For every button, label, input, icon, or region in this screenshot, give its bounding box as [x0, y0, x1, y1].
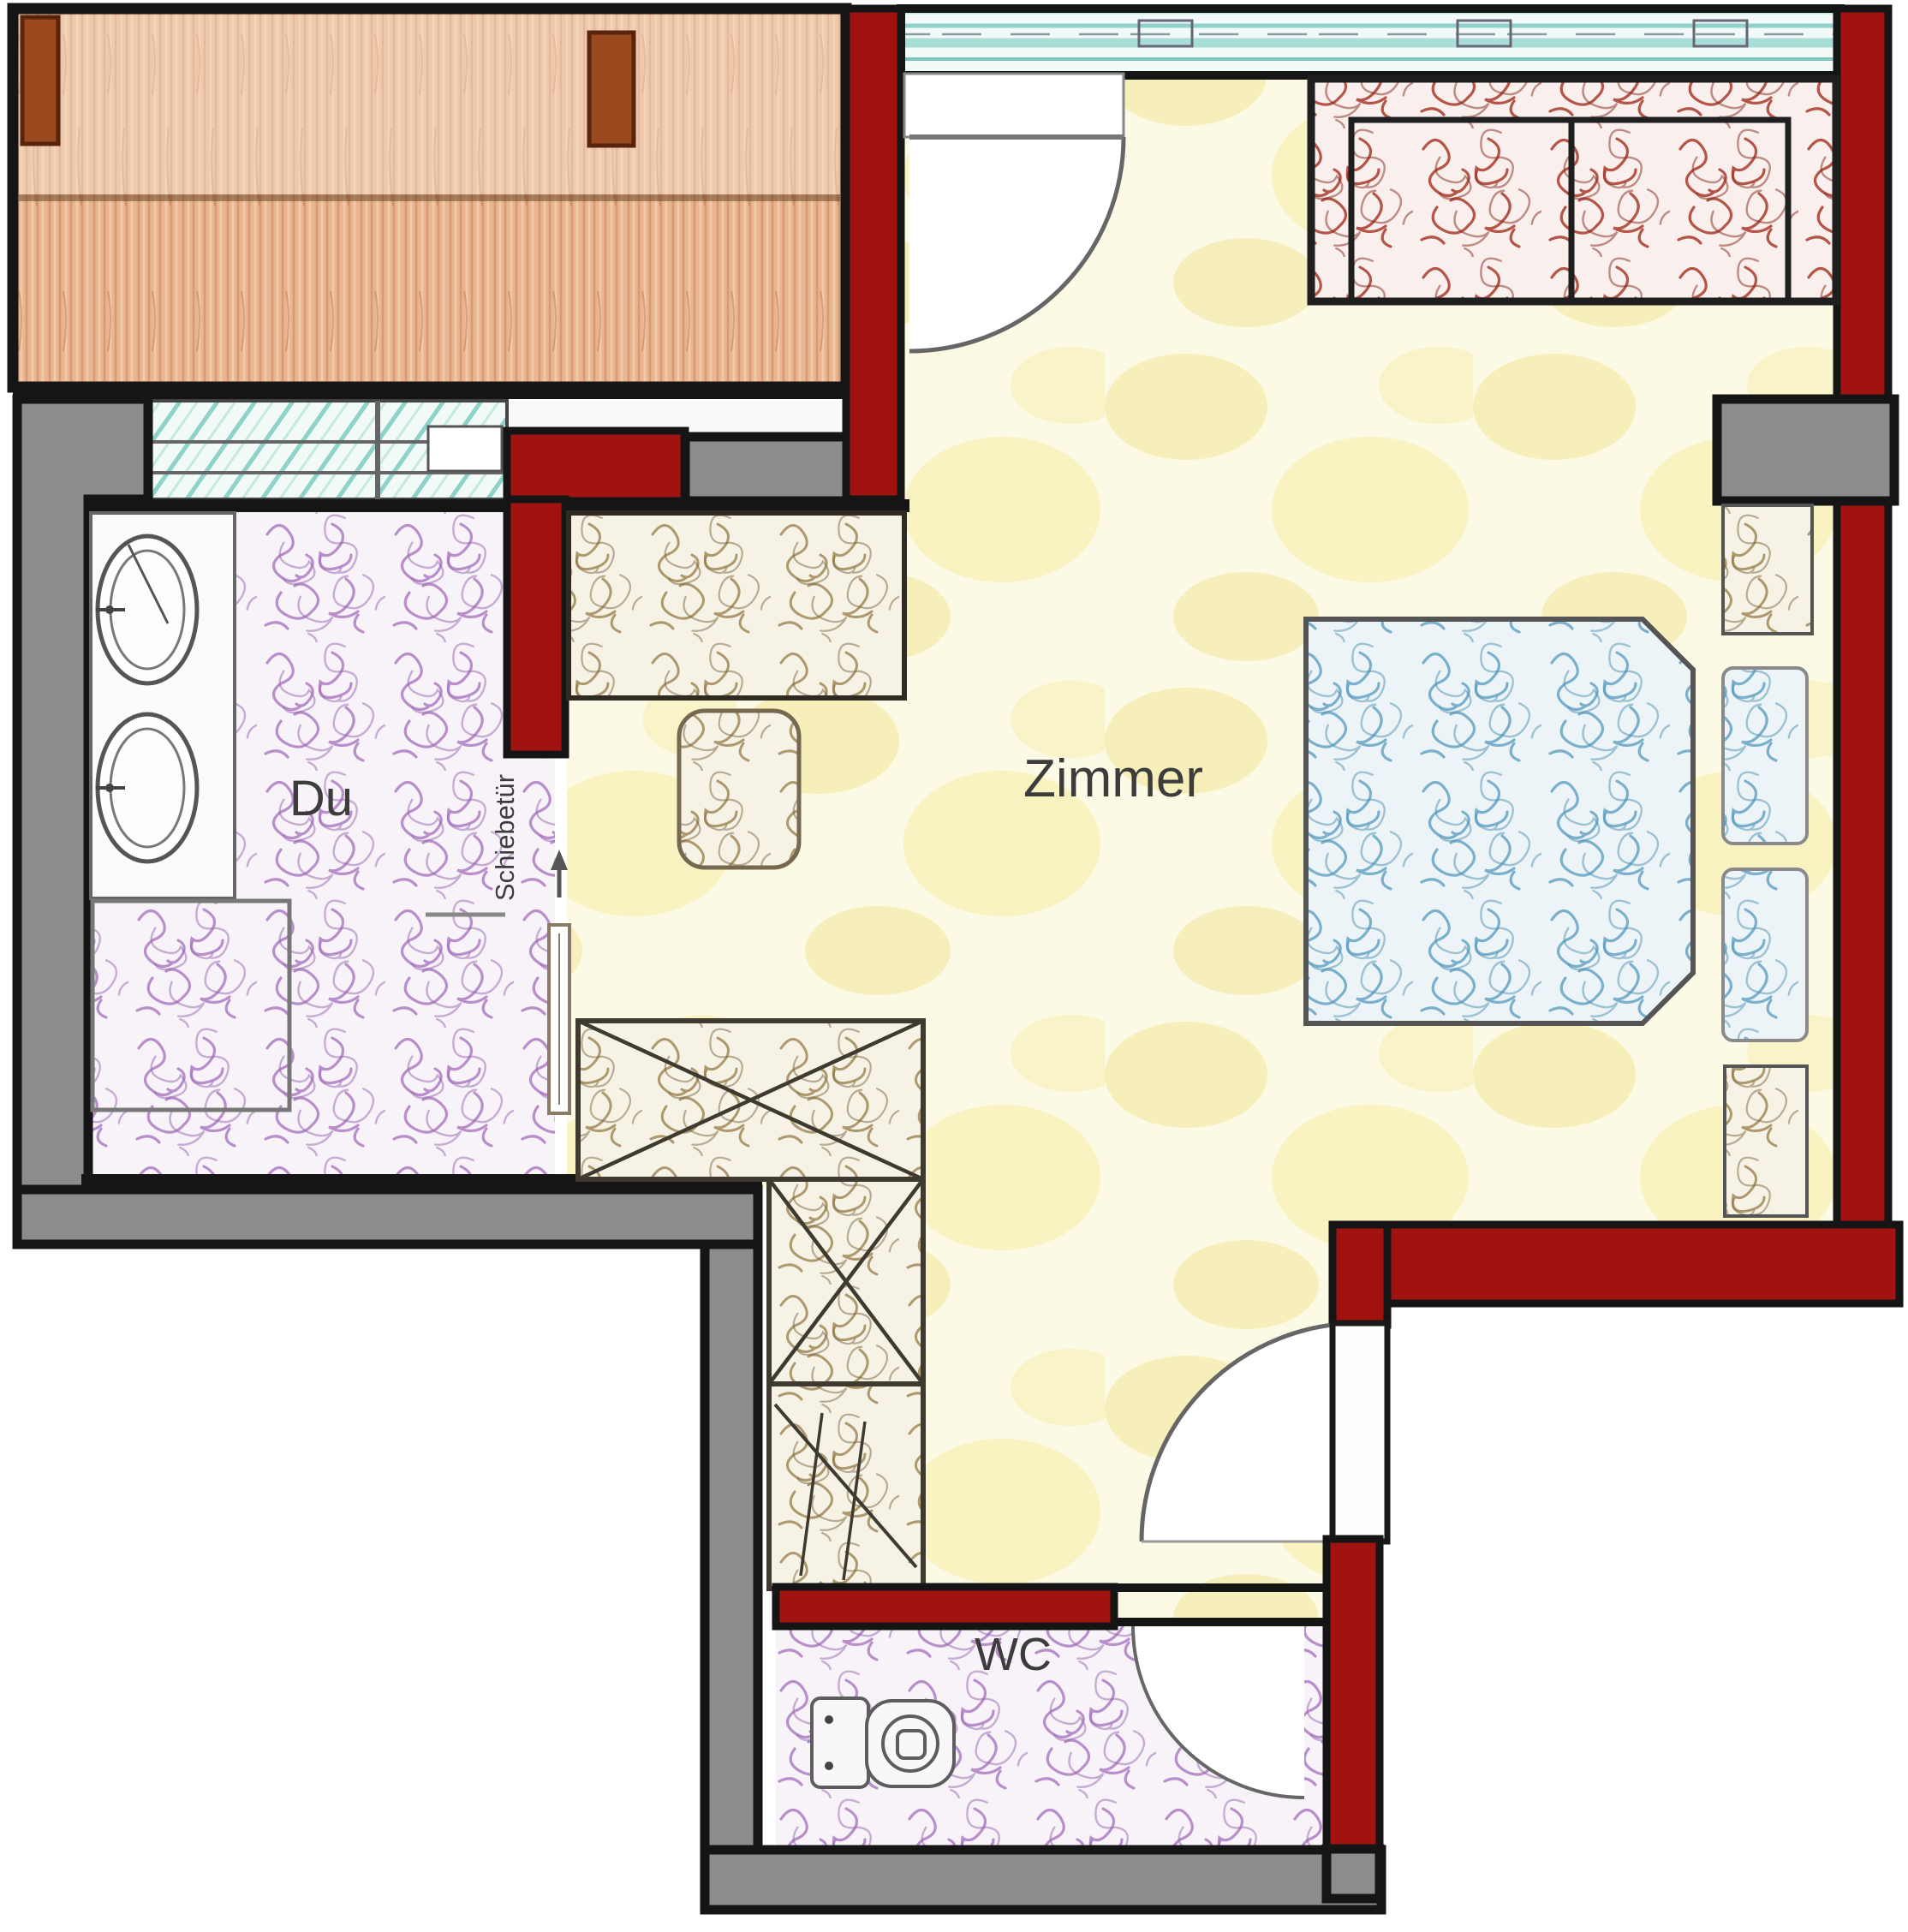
door-leaf — [1333, 1323, 1387, 1541]
room-label: Zimmer — [1023, 749, 1203, 808]
wc-door-threshold — [1114, 1618, 1327, 1626]
chair-icon — [679, 711, 799, 868]
nightstand-icon — [1725, 1066, 1807, 1216]
wall-gray-wc-south — [705, 1850, 1381, 1910]
wc-label: WC — [975, 1629, 1052, 1680]
pillow-icon — [1723, 668, 1807, 844]
floor-plan-page: Zimmer Du WC Schiebetür — [0, 0, 1908, 1932]
wall-red-bathroom — [507, 499, 565, 754]
wall-red-wc-east — [1327, 1539, 1380, 1849]
desk-icon — [569, 513, 904, 698]
wall-red-right — [1837, 9, 1888, 1303]
balcony-post-icon — [589, 33, 634, 146]
window-mullion — [375, 401, 380, 499]
balcony — [13, 9, 848, 399]
wall-red-southeast — [1333, 1225, 1899, 1303]
wall-gray-bathroom-south — [17, 1190, 758, 1244]
double-bed-icon — [1306, 619, 1693, 1023]
shower-label: Du — [289, 771, 353, 826]
wall-red-stub — [1333, 1225, 1387, 1325]
balcony-railing-edge — [19, 194, 840, 201]
wall-gray-west-of-wc — [705, 1244, 758, 1857]
wall-red-pillar — [846, 9, 901, 499]
top-window-band — [901, 9, 1840, 75]
wall-red-wc-north — [776, 1587, 1114, 1626]
window-detail — [428, 426, 502, 471]
wc-door-lintel — [1114, 1583, 1327, 1592]
window-band-icon — [901, 9, 1840, 75]
balcony-railing — [19, 15, 840, 194]
bathroom-window-strip — [88, 401, 867, 501]
wall-gray-segment — [685, 437, 867, 501]
sliding-door-label: Schiebetür — [490, 774, 520, 901]
wall-gray-stub — [1327, 1849, 1380, 1899]
sofa-icon — [1311, 79, 1836, 301]
toilet-icon — [812, 1698, 954, 1787]
floor-plan: Zimmer Du WC Schiebetür — [0, 0, 1908, 1932]
nightstand-icon — [1723, 505, 1812, 634]
washbasin-icon — [96, 714, 197, 862]
washbasin-icon — [96, 536, 197, 683]
sliding-door-icon — [549, 925, 569, 1113]
wall-gray-niche — [1717, 399, 1894, 501]
door-opening — [904, 74, 1124, 137]
pillow-icon — [1723, 869, 1807, 1041]
balcony-post-icon — [22, 17, 58, 144]
wall-red-segment — [507, 431, 685, 501]
